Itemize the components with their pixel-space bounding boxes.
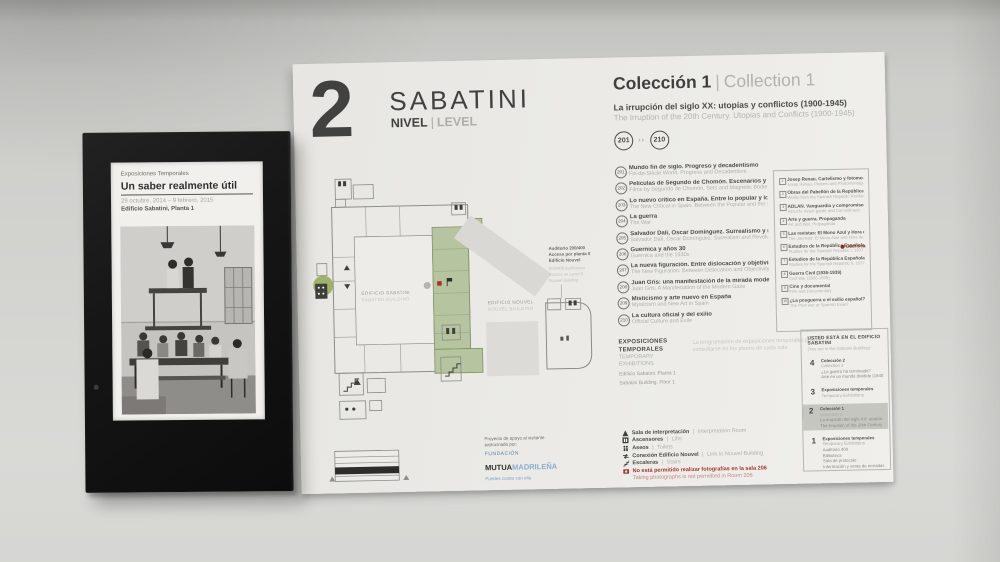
collection-title: Colección 1|Collection 1 — [613, 69, 816, 94]
digital-kiosk: Exposiciones Temporales Un saber realmen… — [82, 131, 293, 493]
current-level-band — [335, 466, 399, 474]
sponsor-logo: MUTUAMADRILEÑA — [485, 455, 603, 475]
temporary-exhibitions-block: EXPOSICIONES TEMPORALES TEMPORARY EXHIBI… — [618, 338, 685, 387]
building-section-icon — [327, 442, 412, 486]
nouvel-label-es: EDIFICIO NOUVEL — [488, 299, 534, 305]
highlight-item: 7Estudios de la República Española II, 1… — [781, 256, 865, 268]
kiosk-exhibition-location: Edificio Sabatini, Planta 1 — [121, 205, 253, 212]
highlight-item: 2Obras del Pabellón de la República Espa… — [779, 189, 863, 201]
building-name: SABATINI — [389, 83, 530, 117]
highlights-box: 1Josep Renau. Cartelismo y fotomontajeJo… — [773, 168, 872, 332]
directory-subtitle: (You are in the Sabatini Building) — [808, 345, 883, 352]
room-number-badge: 202 — [615, 183, 627, 195]
level-label-es: NIVEL — [391, 115, 428, 130]
nouvel-label-en: NOUVEL BUILDING — [488, 306, 534, 312]
wayfinding-panel: 2 SABATINI NIVEL|LEVEL — [293, 52, 894, 494]
temporary-title-en: TEMPORARY EXHIBITIONS — [619, 353, 685, 368]
level-label-en: LEVEL — [437, 114, 478, 129]
kiosk-eyebrow: Exposiciones Temporales — [121, 170, 253, 177]
collection-title-en: Collection 1 — [724, 69, 816, 91]
highlight-item: 1Josep Renau. Cartelismo y fotomontajeJo… — [779, 175, 863, 187]
highlight-item: 8Guerra Civil (1936-1939)Civil War (1936… — [781, 269, 865, 281]
room-range-arrow: ›› — [638, 137, 645, 144]
temporary-title-es: EXPOSICIONES TEMPORALES — [618, 338, 684, 354]
room-number-badge: 204 — [616, 215, 628, 227]
highlight-item-guernica: 6Estudios de la República Española I, 19… — [780, 242, 864, 254]
elevator-icon — [622, 438, 628, 444]
room-range-start: 201 — [614, 131, 633, 150]
room-number-badge: 208 — [617, 281, 629, 293]
auditorium-callout: Auditorio 200/400 Acceso por planta 0 Ed… — [548, 245, 591, 299]
room-number-badge: 206 — [616, 248, 628, 260]
sponsor-intro-line2: patrocinado por: — [485, 440, 603, 448]
room-number-badge: 210 — [618, 314, 630, 326]
highlight-item: 10¿La posguerra o el exilio español?The … — [782, 296, 866, 308]
svg-text:200/400 Auditorium: 200/400 Auditorium — [549, 265, 586, 271]
no-photography-icon — [623, 468, 629, 474]
nouvel-plaza — [486, 321, 539, 376]
room-number-badge: 203 — [615, 199, 627, 211]
room-number-badge: 201 — [615, 166, 627, 178]
room-number-badge: 207 — [617, 265, 629, 277]
exhibition-photo — [120, 225, 256, 414]
kiosk-exhibition-title: Un saber realmente útil — [121, 179, 253, 195]
map-legend: Sala de interpretación|Interpretation Ro… — [622, 426, 767, 482]
collection-title-divider: | — [711, 71, 724, 91]
highlight-item: 3ADLAN. Vanguardia y compromisoADLAN. Av… — [780, 202, 864, 214]
toilets-icon — [623, 445, 629, 451]
svg-text:Auditorio 200/400: Auditorio 200/400 — [548, 245, 585, 251]
room-number-badge: 209 — [618, 297, 630, 309]
level-label-divider: | — [427, 115, 437, 129]
sponsor-block: Proyecto de apoyo al visitante patrocina… — [484, 434, 603, 481]
svg-text:Nouvel Building: Nouvel Building — [549, 277, 579, 283]
highlight-item: 5Las revistas: El Mono Azul y Hora de Es… — [780, 229, 864, 241]
room-list: 201Mundo fin de siglo. Progreso y decade… — [615, 162, 770, 329]
nouvel-link-icon — [623, 453, 629, 459]
interpretation-room-icon — [622, 430, 628, 436]
temporary-line1: Edificio Sabatini. Planta 1 — [619, 370, 685, 378]
guernica-marker-dot — [437, 281, 442, 286]
kiosk-exhibition-dates: 29 octubre, 2014 – 9 febrero, 2015 — [121, 197, 253, 204]
directory-level-2-current: 2 Colección 1 Collection 1 La irrupción … — [803, 403, 889, 430]
room-range-end: 210 — [650, 130, 669, 149]
svg-text:Acceso por planta 0: Acceso por planta 0 — [549, 251, 591, 257]
elevator-box-icon — [315, 284, 327, 299]
sponsor-tagline: Puedes contar con ella — [485, 474, 603, 481]
highlight-item: 9Cine y documentalFilm and Documentary — [781, 282, 865, 294]
stairs-icon — [623, 460, 629, 466]
guernica-marker-label: Guernica — [840, 243, 866, 249]
temporary-line2: Sabatini Building. Floor 1 — [619, 379, 685, 387]
room-list-item: 210La cultura oficial y del exilioOffici… — [618, 310, 770, 330]
room-range: 201 ›› 210 — [614, 130, 669, 150]
sponsor-madrilena: MADRILEÑA — [512, 461, 557, 471]
level-label: NIVEL|LEVEL — [391, 114, 478, 130]
directory-level-3: 3 Exposiciones temporales Temporary Exhi… — [808, 385, 883, 401]
svg-text:Edificio Nouvel: Edificio Nouvel — [549, 257, 581, 263]
kiosk-screen[interactable]: Exposiciones Temporales Un saber realmen… — [111, 161, 265, 420]
red-dot-icon — [840, 244, 844, 248]
sabatini-label-es: EDIFICIO SABATINI — [361, 290, 410, 296]
sponsor-mutua: MUTUA — [485, 462, 512, 472]
level-number: 2 — [309, 75, 353, 144]
svg-text:Access on Level 0: Access on Level 0 — [549, 271, 584, 277]
directory-level-1: 1 Exposiciones temporales Temporary Exhi… — [809, 433, 885, 471]
floor-plan-map: EDIFICIO SABATINI SABATINI BUILDING EDIF… — [301, 152, 617, 450]
sabatini-label-en: SABATINI BUILDING — [361, 296, 410, 302]
room-number-badge: 205 — [616, 232, 628, 244]
building-directory: USTED ESTÁ EN EL EDIFICIO SABATINI (You … — [800, 328, 891, 472]
collection-title-es: Colección 1 — [613, 71, 712, 93]
highlight-item: 4Arte y guerra. PropagandaArt and War. P… — [780, 215, 864, 227]
kiosk-speaker-dot — [94, 385, 99, 390]
directory-level-4: 4 Colección 2 Collection 2 ¿La guerra ha… — [808, 355, 884, 382]
